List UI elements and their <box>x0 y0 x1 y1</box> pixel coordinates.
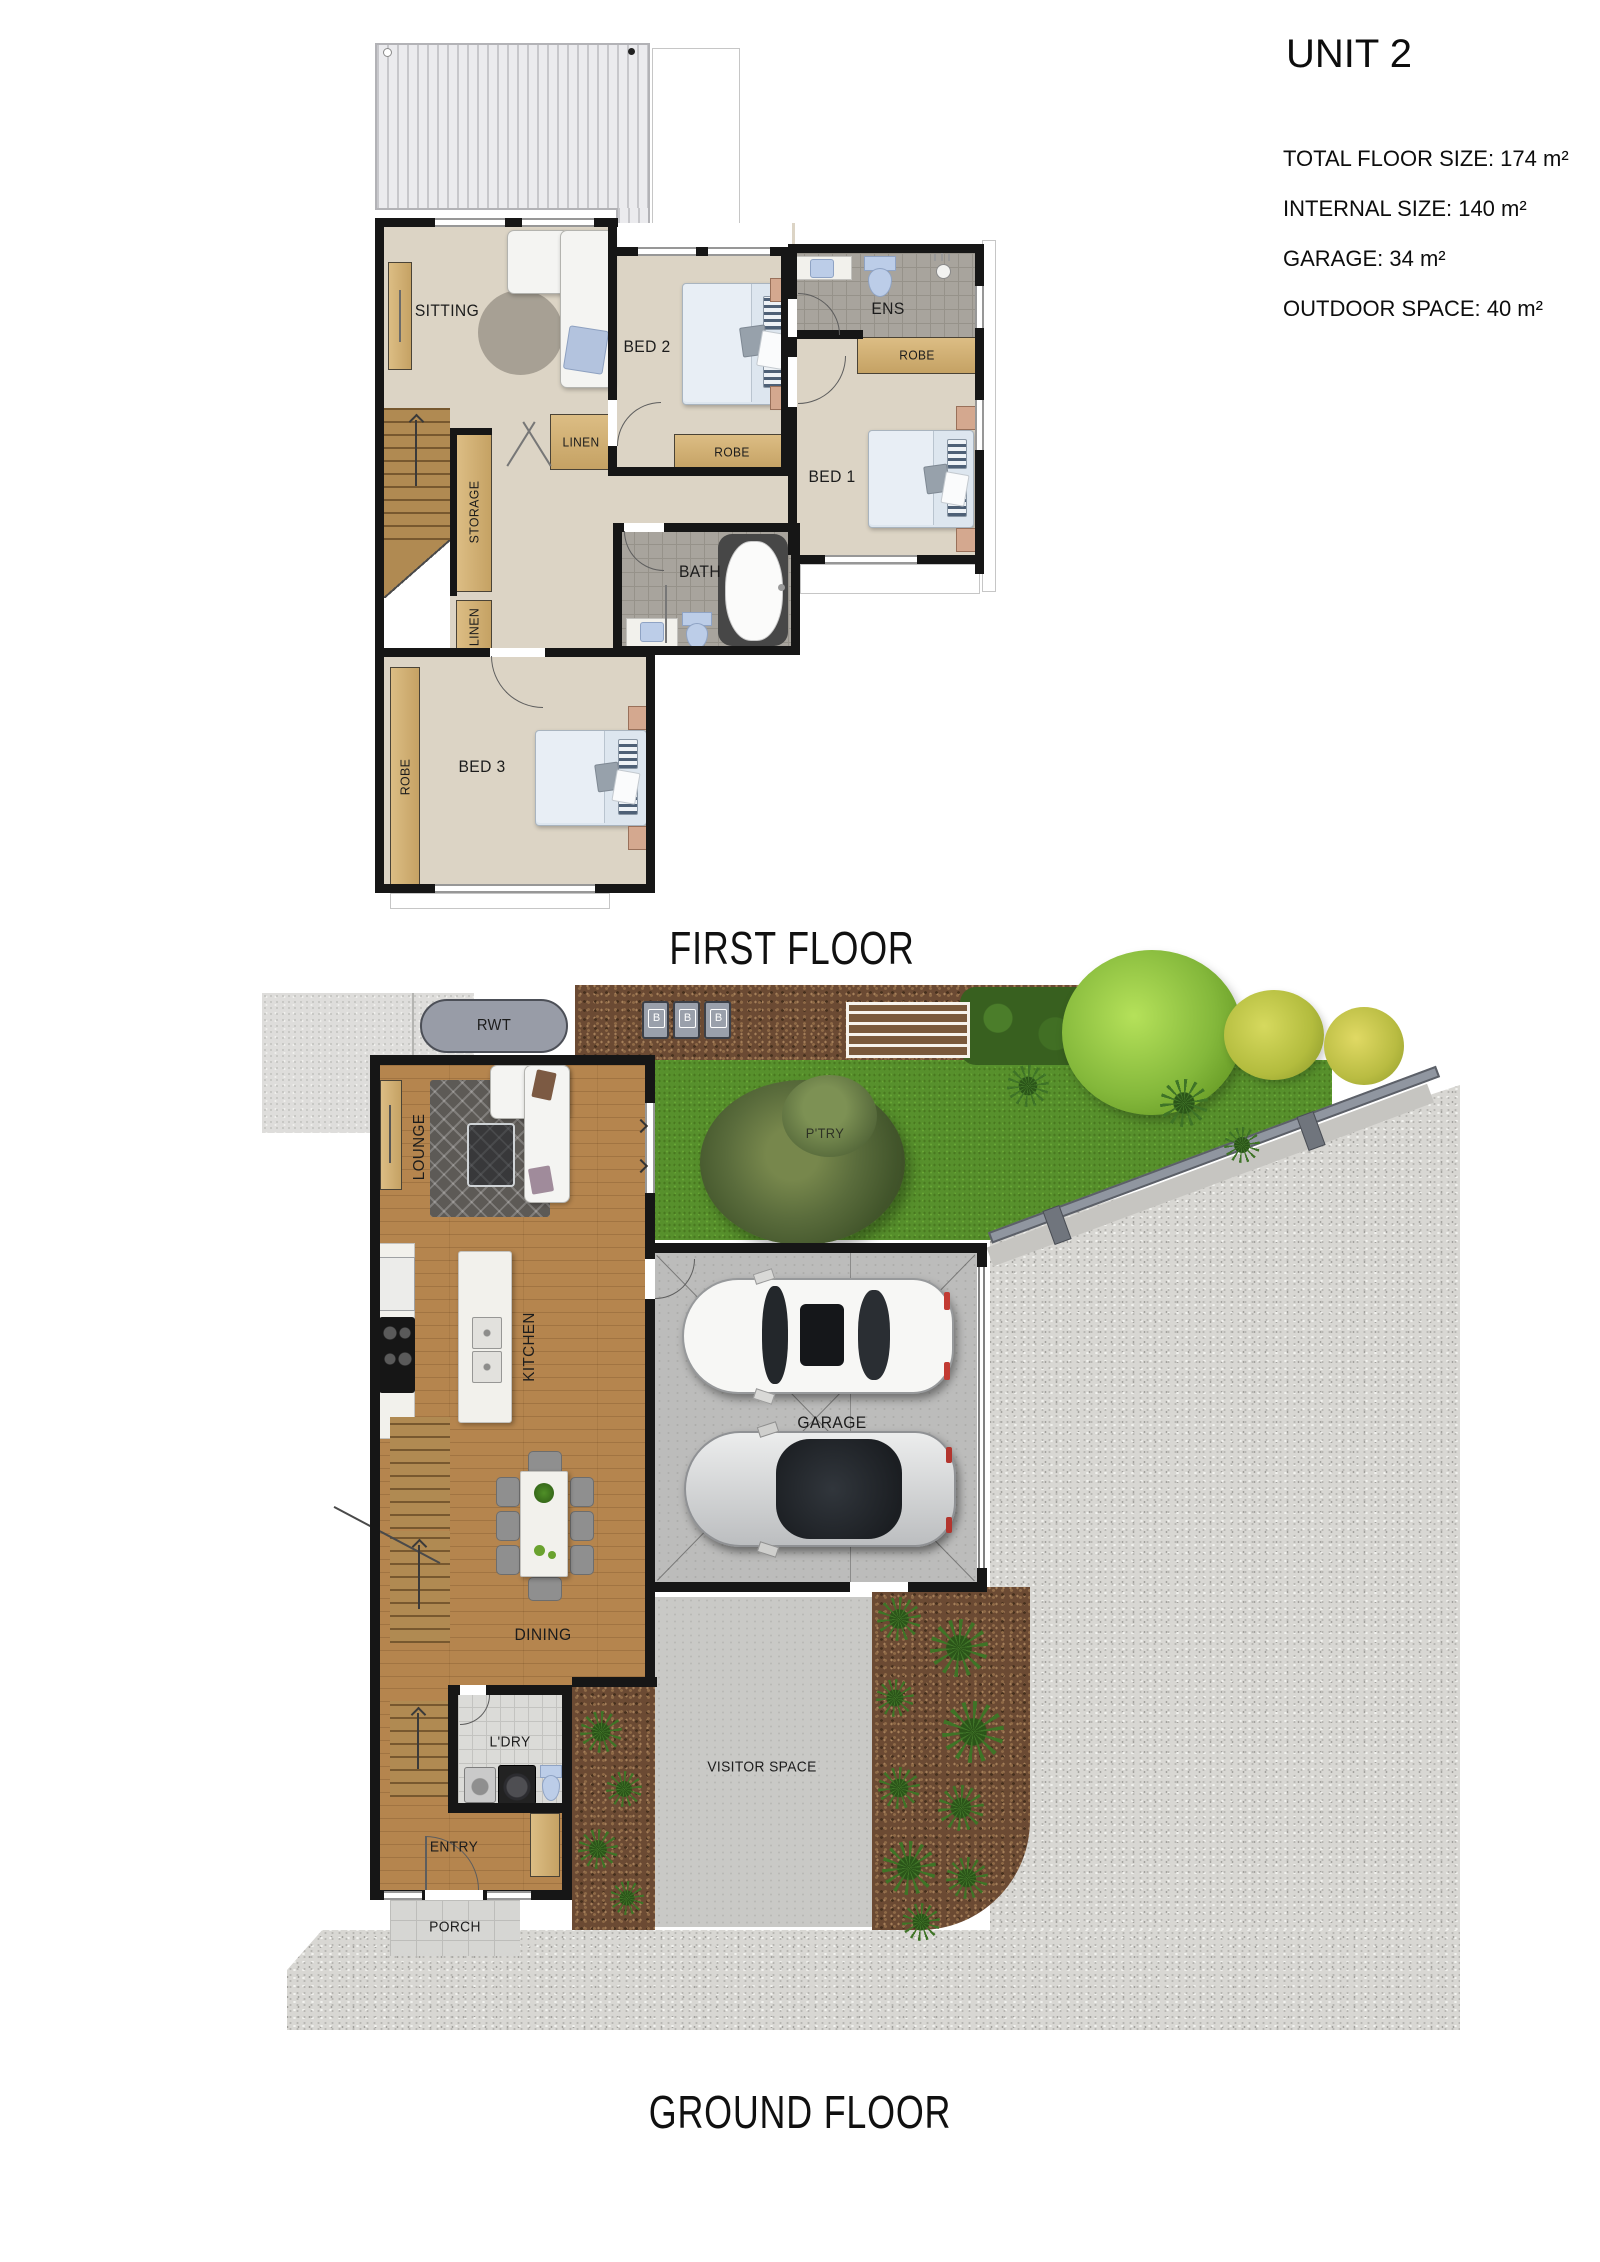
fridge <box>379 1257 415 1311</box>
bath-basin <box>640 622 664 642</box>
plant <box>946 1857 988 1899</box>
first-floor-caption: FIRST FLOOR <box>669 921 914 975</box>
stat-outdoor-space: OUTDOOR SPACE: 40 m² <box>1283 296 1543 322</box>
bin-label: B <box>710 1009 727 1028</box>
bed3-bed <box>535 730 647 826</box>
room-label-laundry: L'DRY <box>489 1734 530 1751</box>
dining-chair <box>570 1511 594 1541</box>
plant <box>606 1771 642 1807</box>
ground-floor-plan: B B B RWT P'TRY <box>262 985 1462 2065</box>
shower-tick <box>934 254 936 261</box>
wall <box>977 1568 987 1592</box>
stat-total-floor-size: TOTAL FLOOR SIZE: 174 m² <box>1283 146 1569 172</box>
kitchen-sink <box>472 1317 502 1349</box>
wall <box>645 1055 655 1103</box>
wall <box>450 428 457 596</box>
stat-garage-size: GARAGE: 34 m² <box>1283 246 1446 272</box>
bush <box>1324 1007 1404 1085</box>
eaves-strip <box>610 223 792 249</box>
shower-tick <box>948 254 950 261</box>
front-door-leaf <box>425 1836 427 1890</box>
car-rear-window <box>858 1290 890 1380</box>
tree <box>1062 950 1242 1115</box>
window <box>975 400 984 450</box>
plant <box>1160 1079 1208 1127</box>
nightstand <box>628 826 648 850</box>
unit-title: UNIT 2 <box>1286 32 1412 77</box>
car-windshield <box>762 1286 788 1384</box>
garage-door <box>978 1267 985 1568</box>
eaves-outline <box>652 48 740 248</box>
sideboard-handle <box>399 290 401 342</box>
dining-chair <box>528 1577 562 1601</box>
wheelie-bin: B <box>642 1001 669 1039</box>
door-opening <box>788 357 797 407</box>
door-opening <box>608 400 617 446</box>
room-label-storage: STORAGE <box>467 481 482 544</box>
room-label-kitchen: KITCHEN <box>521 1312 539 1381</box>
wall <box>646 648 655 893</box>
car-cabin <box>776 1439 902 1539</box>
window <box>708 247 770 256</box>
room-label-porch: PORCH <box>429 1919 481 1936</box>
plant <box>578 1829 618 1869</box>
window <box>638 247 696 256</box>
washing-machine <box>498 1765 536 1805</box>
room-label-garage: GARAGE <box>797 1413 866 1433</box>
car-white <box>682 1278 954 1394</box>
ground-floor-caption: GROUND FLOOR <box>649 2085 951 2139</box>
wheelie-bin: B <box>673 1001 700 1039</box>
wall <box>613 523 622 655</box>
room-label-sitting: SITTING <box>415 301 479 321</box>
door-opening <box>460 1685 486 1695</box>
cooktop <box>379 1317 415 1393</box>
dining-chair <box>496 1477 520 1507</box>
dining-chair <box>570 1545 594 1575</box>
wall <box>562 1685 572 1900</box>
room-label-linen-stairs: LINEN <box>467 608 482 646</box>
room-label-robe-ens: ROBE <box>899 348 934 363</box>
eaves-outline-right <box>982 240 996 592</box>
window <box>825 555 917 564</box>
wall <box>645 1253 655 1592</box>
round-rug <box>478 290 563 375</box>
wall <box>608 467 791 476</box>
ensuite-basin <box>810 259 834 278</box>
kitchen-sink <box>472 1351 502 1383</box>
plant <box>938 1785 984 1831</box>
wall <box>977 1243 987 1267</box>
window <box>487 1891 531 1900</box>
plant <box>1007 1065 1049 1107</box>
car-taillight <box>944 1362 950 1380</box>
eaves-outline-south <box>800 564 980 594</box>
room-label-dining: DINING <box>515 1625 572 1645</box>
first-floor-plan: SITTING BED 2 ENS ROBE ROBE LINEN BED 1 … <box>370 40 1010 920</box>
room-label-bed3: BED 3 <box>458 757 505 777</box>
garden-sleeper-box <box>846 1002 970 1058</box>
bathtub <box>725 541 783 641</box>
wall <box>375 648 384 893</box>
bed-pillow <box>947 439 967 469</box>
plant <box>1224 1127 1260 1163</box>
wheelie-bin: B <box>704 1001 731 1039</box>
plant <box>930 1619 988 1677</box>
dining-chair <box>496 1511 520 1541</box>
wall <box>448 1803 570 1813</box>
room-label-bath: BATH <box>679 562 721 582</box>
wall <box>788 244 984 253</box>
bed-pillow <box>618 739 638 769</box>
wall <box>370 1055 655 1065</box>
room-label-entry: ENTRY <box>430 1839 478 1856</box>
stair-diagonal-cut <box>384 540 450 598</box>
shower-tick <box>941 252 943 261</box>
room-label-linen: LINEN <box>562 435 599 450</box>
dining-chair <box>496 1545 520 1575</box>
car-taillight <box>946 1517 952 1533</box>
rwt-label: RWT <box>477 1017 511 1035</box>
door-opening <box>645 1259 655 1299</box>
plant <box>877 1597 921 1641</box>
room-label-bed1: BED 1 <box>808 467 855 487</box>
plant <box>902 1903 940 1941</box>
deck-post-icon <box>628 48 635 55</box>
tv-line <box>389 1105 391 1163</box>
car-silver <box>684 1431 956 1547</box>
wall <box>450 428 492 435</box>
room-label-pantry: P'TRY <box>806 1125 844 1141</box>
entry-cabinet <box>530 1813 560 1877</box>
window <box>384 1891 422 1900</box>
nightstand <box>628 706 648 730</box>
tree-canopy-blob <box>782 1075 877 1157</box>
plant <box>876 1679 914 1717</box>
bed-duvet <box>536 731 605 823</box>
plant <box>942 1701 1004 1763</box>
room-label-bed2: BED 2 <box>623 337 670 357</box>
balcony-deck <box>375 43 650 210</box>
plant <box>878 1767 920 1809</box>
wall <box>370 1055 380 1900</box>
coffee-table <box>467 1123 515 1187</box>
sofa-pillow <box>528 1165 554 1194</box>
room-label-robe-bed3: ROBE <box>398 759 413 796</box>
sliding-door-yard <box>645 1103 655 1193</box>
laundry-tub <box>464 1767 496 1803</box>
sofa-pillow <box>563 325 609 375</box>
stairs-ground-upper <box>390 1417 450 1529</box>
shower-screen-line <box>665 585 667 643</box>
stair-arrow-line <box>415 420 417 486</box>
plant <box>580 1711 622 1753</box>
wall <box>645 1243 987 1253</box>
car-sunroof <box>800 1304 844 1366</box>
front-door-opening <box>425 1890 483 1900</box>
stat-internal-size: INTERNAL SIZE: 140 m² <box>1283 196 1527 222</box>
bush <box>1224 990 1324 1080</box>
table-plant-small <box>534 1545 545 1556</box>
door-opening <box>788 299 797 337</box>
tv-cabinet <box>380 1080 402 1190</box>
bin-label: B <box>679 1009 696 1028</box>
window <box>435 218 505 227</box>
wall <box>645 1592 655 1687</box>
dining-chair <box>570 1477 594 1507</box>
plant <box>882 1841 936 1895</box>
room-label-visitor-space: VISITOR SPACE <box>707 1759 816 1776</box>
room-label-lounge: LOUNGE <box>411 1114 429 1180</box>
wall <box>375 218 384 657</box>
table-plant <box>534 1483 554 1503</box>
deck-post-icon <box>383 48 392 57</box>
window <box>975 286 984 328</box>
wall <box>448 1685 458 1807</box>
wall <box>791 523 800 655</box>
car-taillight <box>944 1292 950 1310</box>
nightstand <box>956 528 976 552</box>
plant <box>610 1881 644 1915</box>
table-plant-small <box>548 1551 556 1559</box>
wall <box>572 1677 657 1687</box>
window <box>435 884 595 893</box>
room-label-ens: ENS <box>871 299 904 319</box>
car-taillight <box>946 1447 952 1463</box>
door-opening <box>850 1582 908 1592</box>
wall <box>645 1582 987 1592</box>
floorplan-page: UNIT 2 TOTAL FLOOR SIZE: 174 m² INTERNAL… <box>0 0 1600 2262</box>
window <box>522 218 594 227</box>
shower-rose-icon <box>936 264 951 279</box>
room-label-robe-bed2: ROBE <box>714 445 749 460</box>
eaves-outline-bed3 <box>390 893 610 909</box>
nightstand <box>956 406 976 430</box>
bin-label: B <box>648 1009 665 1028</box>
bath-tap-icon <box>778 584 785 591</box>
bed1-bed <box>868 430 974 528</box>
